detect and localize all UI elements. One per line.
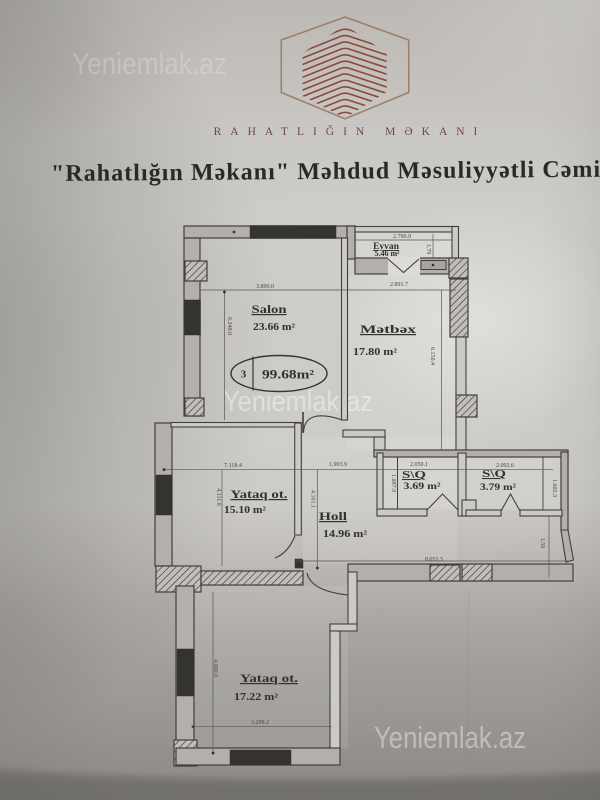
svg-text:Holl: Holl	[319, 509, 348, 523]
svg-text:2.891.7: 2.891.7	[390, 282, 408, 288]
svg-text:7.118.4: 7.118.4	[224, 463, 242, 469]
svg-text:4.111.8: 4.111.8	[215, 488, 221, 506]
svg-text:15.10 m²: 15.10 m²	[224, 505, 266, 516]
svg-text:1.903.9: 1.903.9	[329, 462, 347, 468]
svg-text:17.22 m²: 17.22 m²	[234, 692, 278, 703]
svg-text:1.79: 1.79	[425, 244, 431, 255]
svg-text:Mətbəx: Mətbəx	[360, 322, 416, 336]
svg-text:23.66 m²: 23.66 m²	[253, 322, 295, 333]
svg-text:4.000.0: 4.000.0	[212, 659, 218, 677]
svg-text:1.087.9: 1.087.9	[390, 474, 396, 492]
svg-text:8.051.5: 8.051.5	[425, 557, 443, 563]
svg-text:"Rahatlığın Məkanı" Məhdud Məs: "Rahatlığın Məkanı" Məhdud Məsuliyyətli …	[51, 157, 600, 187]
svg-text:1.602.3: 1.602.3	[551, 479, 557, 497]
svg-text:Salon: Salon	[252, 302, 287, 316]
svg-text:S\Q: S\Q	[402, 470, 426, 481]
svg-text:3.79 m²: 3.79 m²	[480, 483, 516, 493]
svg-text:99.68m²: 99.68m²	[262, 368, 314, 382]
svg-text:5.46 m²: 5.46 m²	[374, 249, 400, 258]
svg-text:14.96 m²: 14.96 m²	[323, 529, 367, 540]
svg-text:S\Q: S\Q	[482, 469, 506, 480]
svg-text:3.890.0: 3.890.0	[256, 284, 274, 290]
svg-text:Yataq ot.: Yataq ot.	[240, 671, 298, 685]
svg-text:6.240.0: 6.240.0	[226, 317, 232, 335]
svg-text:Yeniemlak.az: Yeniemlak.az	[72, 46, 227, 81]
svg-text:1.50: 1.50	[539, 538, 545, 549]
svg-text:2.050.1: 2.050.1	[410, 462, 428, 468]
svg-text:3: 3	[241, 369, 247, 381]
svg-text:Yeniemlak.az: Yeniemlak.az	[374, 720, 526, 755]
svg-text:17.80 m²: 17.80 m²	[353, 347, 397, 358]
svg-text:RAHATLIĞIN MƏKANI: RAHATLIĞIN MƏKANI	[214, 124, 487, 138]
svg-text:3.299.2: 3.299.2	[251, 720, 269, 726]
svg-text:2.790.9: 2.790.9	[393, 234, 411, 240]
svg-text:Yataq ot.: Yataq ot.	[231, 487, 288, 501]
svg-text:4.161.1: 4.161.1	[310, 490, 316, 508]
svg-text:3.69 m²: 3.69 m²	[404, 482, 441, 492]
svg-text:6.150.4: 6.150.4	[429, 347, 435, 365]
